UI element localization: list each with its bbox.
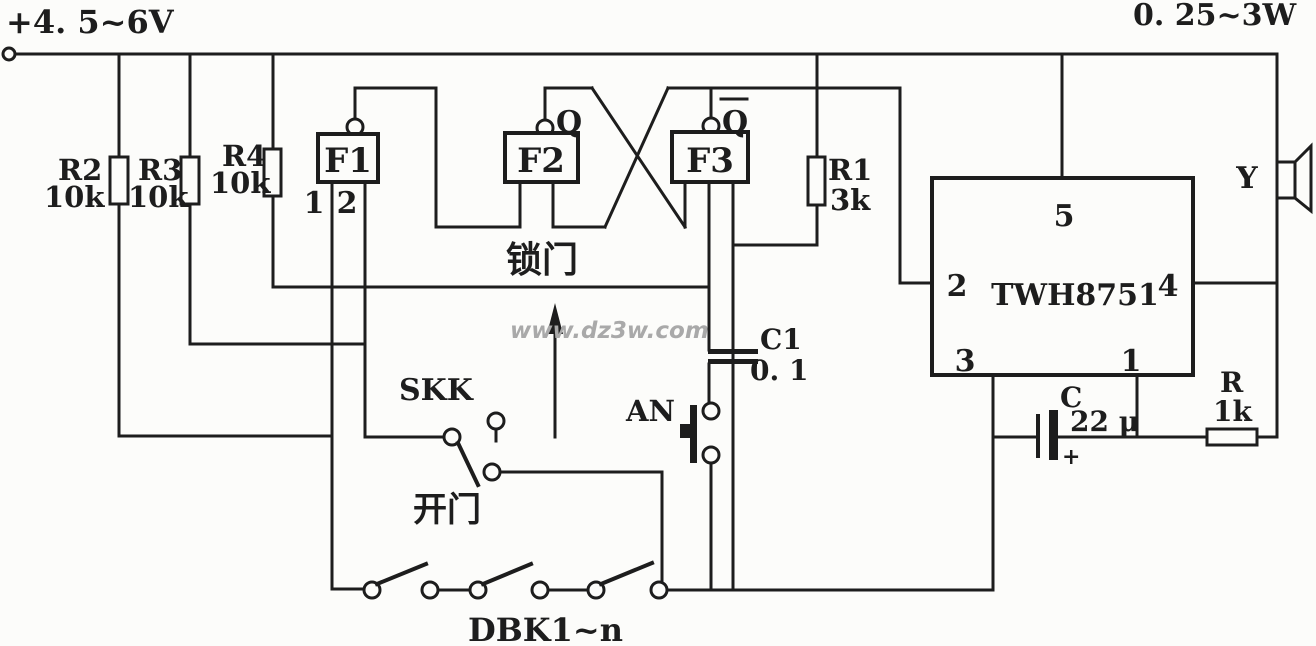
an-actuator-knob — [680, 424, 690, 438]
resistor-r2: R2 10k — [44, 54, 332, 436]
resistor-r1: R1 3k — [733, 54, 872, 245]
block-f1: F1 1 2 — [304, 88, 520, 589]
ic-name-label: TWH8751 — [991, 278, 1159, 313]
r-value-label: 1k — [1213, 395, 1252, 428]
dbk2-blade — [483, 564, 531, 584]
f1-pin2-label: 2 — [337, 186, 358, 221]
speaker-y: Y — [1235, 54, 1311, 437]
r1-value-label: 3k — [830, 183, 871, 217]
an-actuator-bar — [690, 405, 697, 463]
c1-value-label: 0. 1 — [750, 354, 808, 387]
supply-voltage-label: +4. 5~6V — [6, 3, 175, 41]
dbk-label: DBK1~n — [468, 611, 623, 646]
capacitor-c1: C1 0. 1 — [708, 323, 808, 403]
open-door-label: 开门 — [413, 490, 481, 530]
f2-label: F2 — [517, 141, 565, 181]
ic-pin3-label: 3 — [955, 344, 976, 379]
output-power-label: 0. 25~3W — [1133, 0, 1298, 33]
dbk2-right-contact — [532, 582, 548, 598]
an-top-contact — [703, 403, 719, 419]
r1-name-label: R1 — [828, 153, 872, 187]
input-terminal — [3, 48, 15, 60]
skk-blade — [458, 443, 478, 485]
r1-body — [808, 157, 825, 205]
c-left-plate — [1036, 414, 1040, 458]
an-label: AN — [625, 394, 675, 428]
ic-pin5-label: 5 — [1054, 199, 1075, 234]
f3-to-f2-cross-wire — [605, 88, 668, 227]
watermark-text: www.dz3w.com — [510, 318, 709, 344]
c-value-label: 22 μ — [1070, 405, 1139, 438]
pushbutton-an: AN — [625, 394, 719, 590]
resistor-r4: R4 10k — [210, 54, 709, 287]
resistor-r: R 1k — [1207, 366, 1277, 445]
c1-name-label: C1 — [760, 323, 802, 356]
speaker-driver — [1277, 162, 1295, 198]
r2-body — [110, 157, 128, 204]
speaker-horn — [1295, 146, 1311, 211]
ic-pin2-label: 2 — [947, 269, 968, 304]
lock-door-label: 锁门 — [506, 239, 578, 281]
c-right-plate — [1049, 410, 1058, 460]
r4-value-label: 10k — [210, 166, 271, 200]
block-f2: F2 Q — [505, 88, 685, 227]
f3-qbar-label: Q — [722, 105, 748, 140]
capacitor-c: C 22 μ + — [993, 381, 1207, 470]
ic-pin4-label: 4 — [1158, 269, 1179, 304]
f3-label: F3 — [686, 141, 734, 181]
r3-value-label: 10k — [128, 180, 189, 214]
an-bottom-contact — [703, 447, 719, 463]
schematic-page: +4. 5~6V 0. 25~3W R2 10k R3 10k R4 10k F… — [0, 0, 1316, 646]
f1-pin1-label: 1 — [304, 186, 325, 221]
r2-value-label: 10k — [44, 180, 105, 214]
dbk3-blade — [601, 563, 652, 584]
f2-q-label: Q — [556, 105, 582, 140]
r-body — [1207, 429, 1257, 445]
dbk1-right-contact — [422, 582, 438, 598]
ic-twh8751: TWH8751 5 2 4 3 1 — [932, 54, 1277, 590]
dbk1-blade — [377, 564, 426, 584]
f1-label: F1 — [324, 141, 372, 181]
switch-skk: SKK 开门 — [399, 373, 662, 582]
c-polarity-label: + — [1062, 444, 1080, 470]
doorbell-circuit-schematic: +4. 5~6V 0. 25~3W R2 10k R3 10k R4 10k F… — [0, 0, 1316, 646]
speaker-label: Y — [1235, 161, 1258, 196]
skk-upper-contact — [488, 413, 504, 429]
dbk3-right-contact — [651, 582, 667, 598]
skk-label: SKK — [399, 373, 474, 408]
skk-lower-contact — [484, 464, 500, 480]
